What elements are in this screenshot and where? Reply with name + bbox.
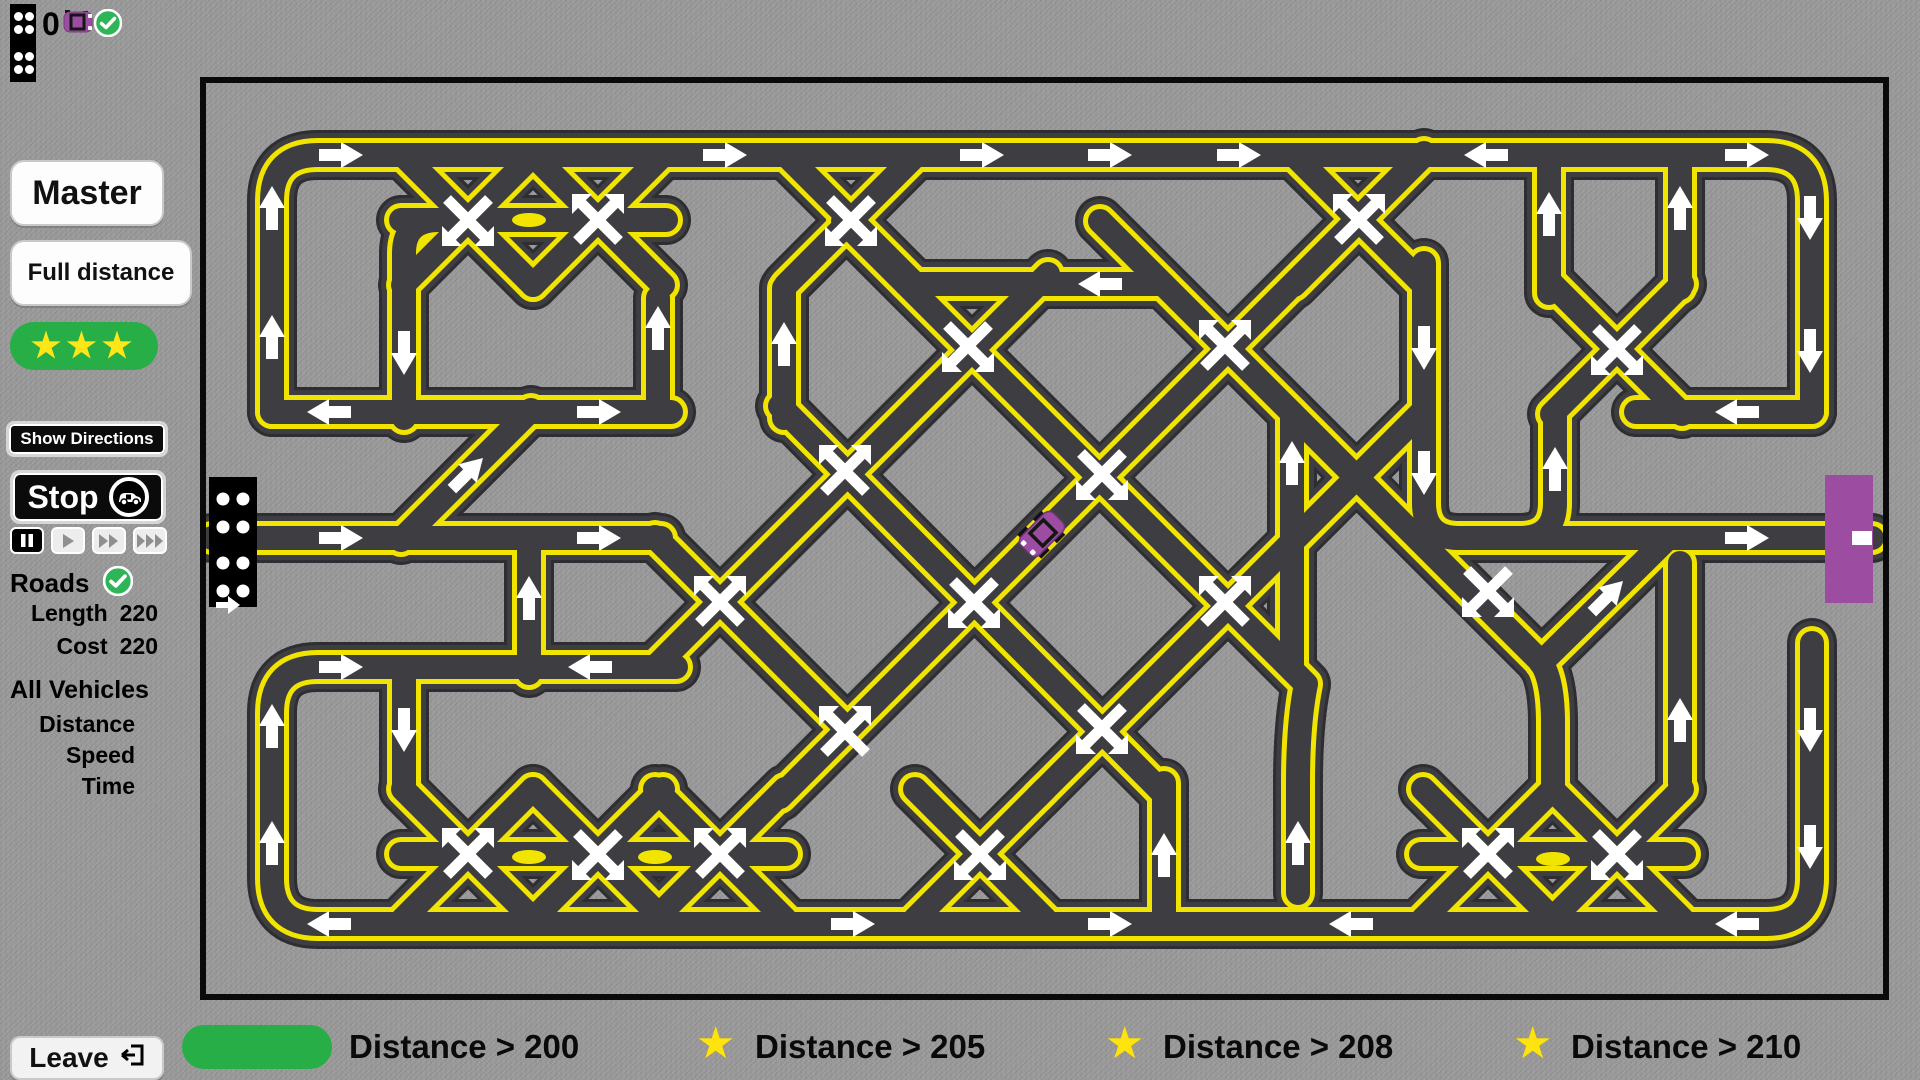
goal-3-star-icon: ★ (1105, 1022, 1144, 1066)
full-distance-label: Full distance (28, 260, 175, 286)
lane-lens-marker (638, 850, 672, 864)
roads-cost-row: Cost 220 (10, 633, 158, 660)
metric-distance[interactable]: Distance (10, 711, 135, 738)
goal-3-label: Distance > 208 (1163, 1028, 1393, 1066)
vehicle-count: 0 (42, 6, 60, 43)
game-screen: { "hud": { "vehicle_count": "0" }, "side… (0, 0, 1920, 1080)
destination-zone[interactable] (1825, 475, 1873, 603)
cost-label: Cost (57, 633, 108, 660)
leave-label: Leave (29, 1042, 108, 1074)
check-circle-icon (94, 9, 122, 42)
goal-1-label: Distance > 200 (349, 1028, 579, 1066)
car-circle-icon (109, 477, 149, 517)
full-distance-button[interactable]: Full distance (10, 240, 192, 306)
goal-2-label: Distance > 205 (755, 1028, 985, 1066)
length-value: 220 (120, 600, 158, 627)
show-directions-button[interactable]: Show Directions (6, 421, 168, 457)
play-button[interactable] (51, 527, 85, 554)
roads-check-icon (103, 566, 133, 601)
roads-section: Roads (10, 566, 133, 601)
lane-lens-marker (512, 850, 546, 864)
master-label: Master (32, 174, 142, 213)
stop-label: Stop (27, 479, 98, 516)
goal-4-star-icon: ★ (1513, 1022, 1552, 1066)
stop-button[interactable]: Stop (10, 470, 166, 524)
metric-speed[interactable]: Speed (10, 742, 135, 769)
leave-exit-icon (119, 1042, 145, 1075)
length-label: Length (31, 600, 108, 627)
road-map[interactable] (200, 77, 1889, 1000)
master-button[interactable]: Master (10, 160, 164, 226)
vehicle-spawner[interactable] (209, 477, 257, 614)
road-map-canvas[interactable] (206, 83, 1883, 994)
playback-controls (10, 527, 167, 554)
vehicle-spawner-legend (10, 4, 36, 82)
car-icon (62, 10, 94, 39)
stars: ★★★ (31, 326, 137, 366)
goal-complete-pill (182, 1025, 332, 1069)
pause-button[interactable] (10, 527, 44, 554)
roads-length-row: Length 220 (10, 600, 158, 627)
metric-time[interactable]: Time (10, 773, 135, 800)
star-rating-badge: ★★★ (10, 322, 158, 370)
roads-label: Roads (10, 568, 89, 599)
all-vehicles-title: All Vehicles (10, 676, 149, 705)
destination-slot (1852, 531, 1872, 545)
goal-2-star-icon: ★ (696, 1022, 735, 1066)
lane-lens-marker (512, 213, 546, 227)
cost-value: 220 (120, 633, 158, 660)
goal-4-label: Distance > 210 (1571, 1028, 1801, 1066)
fast-forward-button[interactable] (92, 527, 126, 554)
lane-lens-marker (1536, 852, 1570, 866)
fastest-forward-button[interactable] (133, 527, 167, 554)
leave-button[interactable]: Leave (10, 1036, 164, 1080)
show-directions-label: Show Directions (20, 429, 153, 449)
